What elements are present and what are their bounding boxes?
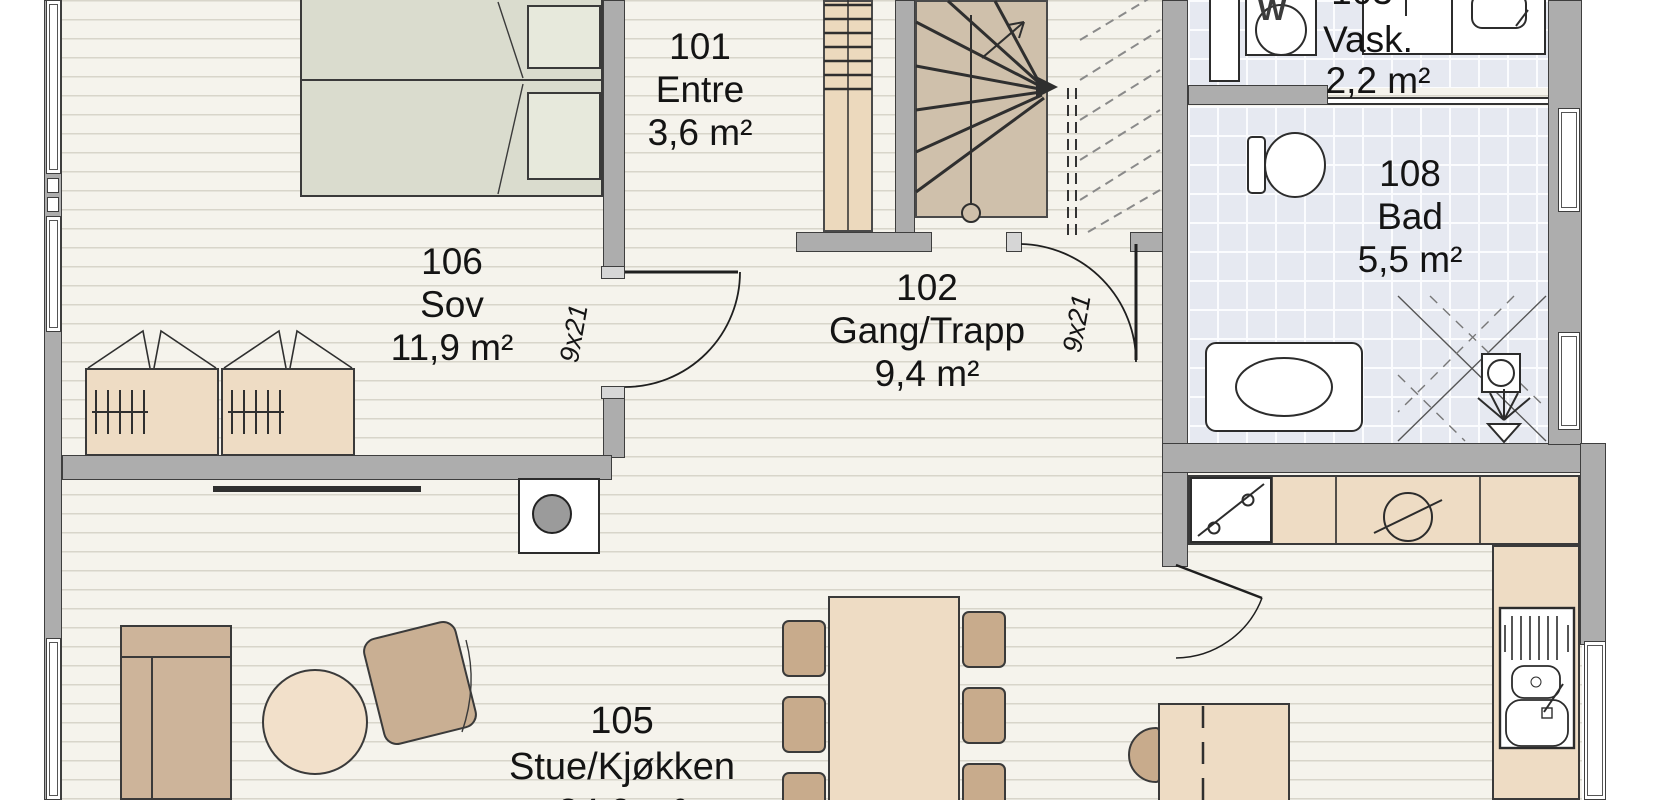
- window-sash: [49, 4, 58, 170]
- bad-door-wall-stub: [1130, 232, 1164, 252]
- stair-left-wall: [895, 0, 915, 233]
- left-window-upper: [46, 0, 61, 174]
- room-area: 5,5 m²: [1260, 238, 1560, 281]
- window-sash: [1561, 112, 1577, 208]
- window-sash: [1587, 645, 1603, 796]
- fireplace: [518, 478, 600, 554]
- sov-door-jamb-bottom: [601, 386, 625, 399]
- room-number: 106: [302, 240, 602, 283]
- entre-gang-wall: [796, 232, 932, 252]
- room-area: 9,4 m²: [777, 352, 1077, 395]
- coffee-table: [262, 669, 368, 775]
- room-label-gang: 102 Gang/Trapp 9,4 m²: [777, 266, 1077, 395]
- window-sash: [1561, 336, 1577, 426]
- gang-bad-vask-wall: [1162, 0, 1188, 567]
- sov-stue-wall: [62, 455, 612, 480]
- room-number: 102: [777, 266, 1077, 309]
- room-area: 3,6 m²: [550, 111, 850, 154]
- right-window-bad2: [1558, 332, 1580, 430]
- dishwasher: [1190, 477, 1272, 543]
- bad-bottom-wall: [1162, 443, 1602, 473]
- floor-plan: 101 Entre 3,6 m² 102 Gang/Trapp 9,4 m² 1…: [0, 0, 1670, 800]
- bad-door-jamb-left: [1006, 232, 1022, 252]
- window-sash: [49, 220, 58, 328]
- right-window-bad: [1558, 108, 1580, 212]
- sov-door-jamb-top: [601, 266, 625, 279]
- tv: [213, 486, 421, 492]
- sofa: [120, 625, 232, 800]
- room-name: Bad: [1260, 195, 1560, 238]
- left-window-mid: [46, 216, 61, 332]
- desk: [1158, 703, 1290, 800]
- room-label-stue-number: 105: [472, 700, 772, 743]
- dining-chair: [782, 620, 826, 677]
- room-label-entre: 101 Entre 3,6 m²: [550, 25, 850, 154]
- kitchen-counter-right: [1492, 545, 1580, 800]
- room-label-vask-area: 2,2 m²: [1228, 59, 1528, 102]
- room-label-vask-number: 103: [1212, 0, 1512, 13]
- dining-chair: [962, 687, 1006, 744]
- left-window-mullion2: [47, 197, 59, 212]
- right-window-kitchen: [1584, 641, 1606, 800]
- dining-chair: [962, 763, 1006, 800]
- window-sash: [49, 642, 58, 796]
- left-window-lower: [46, 638, 61, 800]
- dining-table: [828, 596, 960, 800]
- room-name: Gang/Trapp: [777, 309, 1077, 352]
- room-name: Entre: [550, 68, 850, 111]
- sov-wall-stub: [603, 397, 625, 458]
- dining-chair: [782, 696, 826, 753]
- left-window-mullion: [47, 178, 59, 193]
- washing-machine-label: W: [1258, 0, 1286, 28]
- right-outer-wall-bottom: [1580, 443, 1606, 645]
- room-number: 101: [550, 25, 850, 68]
- room-label-stue-name: Stue/Kjøkken: [472, 746, 772, 789]
- room-number: 108: [1260, 152, 1560, 195]
- wardrobe-left: [85, 368, 219, 456]
- winder-staircase: [915, 0, 1048, 218]
- room-name: Sov: [302, 283, 602, 326]
- room-label-bad: 108 Bad 5,5 m²: [1260, 152, 1560, 281]
- room-label-stue-area: 34,9 m²: [472, 792, 772, 800]
- dining-chair: [962, 611, 1006, 668]
- dining-chair: [782, 772, 826, 800]
- wardrobe-right: [221, 368, 355, 456]
